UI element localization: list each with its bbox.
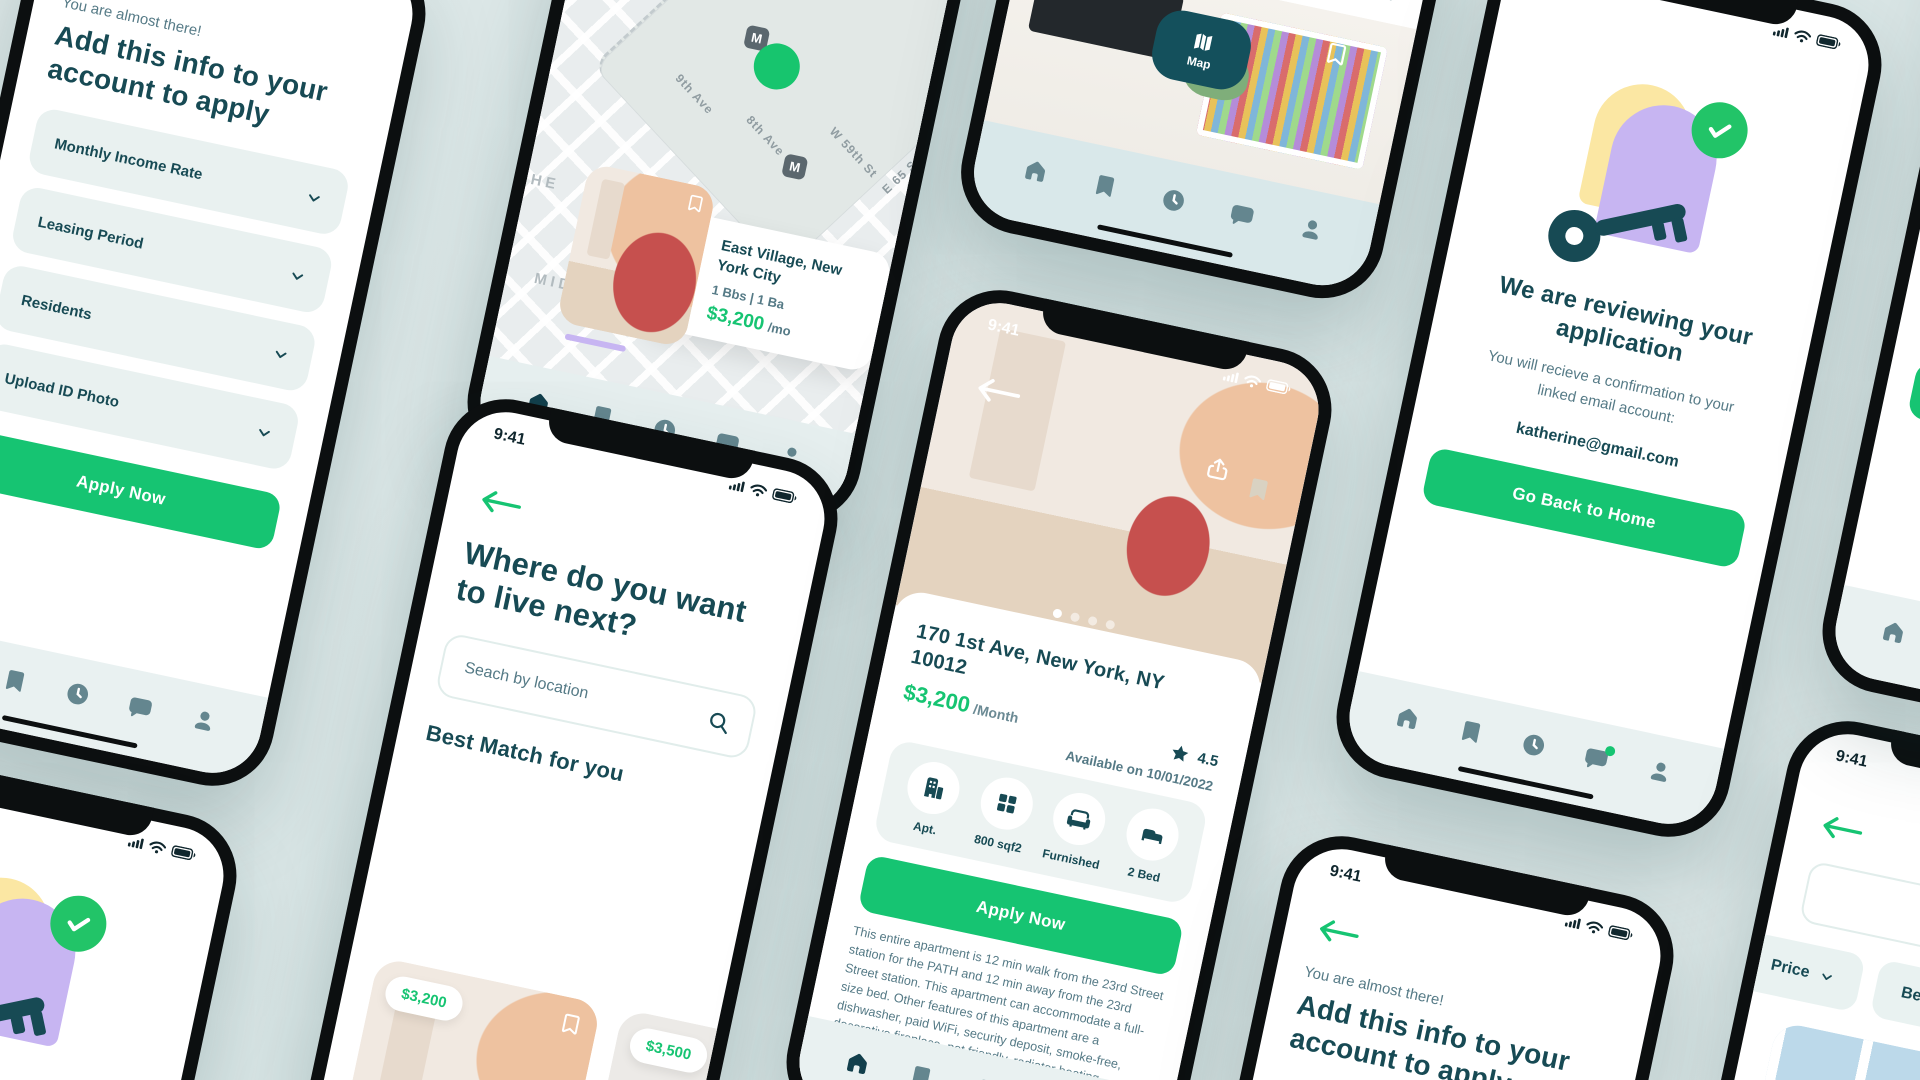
signal-icon (728, 478, 745, 493)
amenity-furnished: Furnished (1037, 787, 1117, 873)
back-button[interactable] (474, 486, 525, 526)
signal-icon (127, 835, 144, 850)
star-icon (1168, 742, 1192, 766)
person-icon[interactable] (1296, 214, 1327, 245)
bookmark-icon[interactable] (1455, 716, 1486, 747)
bottom-nav (1340, 671, 1724, 833)
bookmark-icon[interactable] (1089, 170, 1120, 201)
chevron-down-icon (287, 266, 308, 287)
phone-review-corner: 9:41 We are reviewing your application (0, 745, 248, 1080)
check-icon (61, 906, 97, 942)
bookmark-outline-icon[interactable] (684, 192, 708, 216)
clock-icon[interactable] (62, 679, 93, 710)
person-icon[interactable] (1644, 756, 1675, 787)
home-icon[interactable] (1020, 156, 1051, 187)
clock-icon[interactable] (1158, 185, 1189, 216)
wifi-icon (1585, 920, 1604, 935)
battery-icon (1815, 34, 1842, 51)
bookmark-outline-icon[interactable] (557, 1010, 585, 1038)
search-icon[interactable] (705, 708, 733, 736)
bed-icon (1137, 819, 1168, 850)
battery-icon (1265, 379, 1292, 396)
chevron-down-icon (303, 188, 324, 209)
search-input[interactable] (460, 658, 709, 730)
home-icon[interactable] (1392, 703, 1423, 734)
listing-card[interactable]: $3,200 170 1st Ave, New York, NY 10012 1… (315, 957, 602, 1080)
phone-review: 9:41 We are reviewing your application Y (1325, 0, 1893, 848)
key-icon (1541, 175, 1701, 269)
bookmark-outline-icon[interactable] (1321, 39, 1352, 70)
bed-filter-chip[interactable]: Bed (1870, 959, 1920, 1038)
key-illustration (1550, 71, 1759, 280)
back-arrow-icon (1817, 812, 1867, 847)
home-icon[interactable] (1878, 617, 1909, 648)
best-match-cards: $3,200 170 1st Ave, New York, NY 10012 1… (315, 957, 834, 1080)
amenity-bedrooms: 2 Bed (1110, 802, 1190, 888)
bottom-nav (0, 620, 268, 782)
listing-price: $3,200 (705, 303, 766, 336)
signal-icon (1564, 915, 1581, 930)
bookmark-icon[interactable] (0, 665, 30, 696)
status-time: 9:41 (492, 425, 527, 449)
floorplan-icon (992, 789, 1020, 817)
chevron-down-icon (253, 423, 274, 444)
check-icon (1702, 113, 1738, 149)
review-screen: 9:41 We are reviewing your application Y (1340, 0, 1877, 833)
status-time: 9:41 (1834, 747, 1869, 771)
battery-icon (1607, 925, 1634, 942)
phone-apply-form: You are almost there! Add this info to y… (0, 0, 437, 797)
phone-search-home: 9:41 Where do you want to live next? Bes… (281, 388, 849, 1080)
rating: 4.5 (1168, 742, 1220, 772)
amenity-apartment: Apt. (891, 756, 971, 842)
listing-price-unit: /mo (766, 319, 792, 338)
bookmark-filled-icon[interactable] (1243, 474, 1274, 505)
battery-icon (170, 845, 197, 862)
chat-icon[interactable] (125, 692, 156, 723)
wifi-icon (148, 840, 167, 855)
home-icon[interactable] (842, 1048, 873, 1079)
district-label-partial: HE (529, 171, 561, 194)
wifi-icon (1243, 374, 1262, 389)
rating-value: 4.5 (1196, 749, 1220, 770)
clock-icon[interactable] (1518, 730, 1549, 761)
search-home-screen: 9:41 Where do you want to live next? Bes… (296, 403, 833, 1080)
building-icon (918, 773, 949, 804)
wifi-icon (749, 483, 768, 498)
map-icon (1190, 29, 1216, 55)
go-back-home-button[interactable]: Go Back to Home (1907, 361, 1920, 484)
notification-dot (1605, 745, 1617, 757)
design-canvas: You are almost there! Add this info to y… (0, 0, 1920, 1080)
form-fields: Monthly Income Rate Leasing Period Resid… (0, 107, 351, 472)
chevron-down-icon (1817, 968, 1836, 987)
status-bar: 9:41 (1505, 0, 1875, 60)
wifi-icon (1793, 29, 1812, 44)
apply-form-screen: You are almost there! Add this info to y… (0, 0, 422, 782)
battery-icon (771, 488, 798, 505)
bookmark-icon[interactable] (905, 1061, 936, 1080)
clock-icon[interactable] (968, 1075, 999, 1080)
key-illustration (0, 865, 118, 1074)
back-arrow-icon (475, 486, 525, 521)
price-filter-chip[interactable]: Price (1740, 932, 1867, 1013)
result-photo[interactable] (1690, 1021, 1920, 1080)
signal-icon (1772, 24, 1789, 39)
back-button[interactable] (1816, 812, 1867, 852)
detail-price: $3,200 (901, 679, 972, 717)
signal-icon (1222, 369, 1239, 384)
share-icon[interactable] (1203, 453, 1234, 484)
chevron-down-icon (270, 345, 291, 366)
person-icon[interactable] (188, 705, 219, 736)
amenity-area: 800 sqf2 (964, 771, 1044, 857)
detail-card: 170 1st Ave, New York, NY 10012 $3,200 /… (790, 588, 1265, 1080)
detail-price-unit: /Month (972, 701, 1020, 726)
sofa-icon (1064, 804, 1095, 835)
chat-icon[interactable] (1227, 200, 1258, 231)
